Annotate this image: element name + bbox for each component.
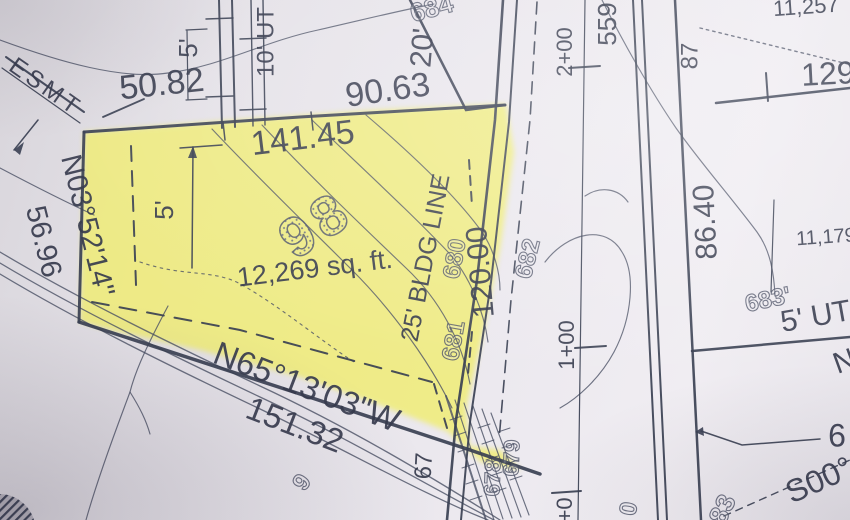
bearing-s00-partial: S00° xyxy=(780,449,850,510)
dim-90-63: 90.63 xyxy=(343,65,433,114)
contour-mark-83: 83 xyxy=(702,490,741,520)
station-2-00: 2+00 xyxy=(552,27,577,77)
dim-86-40: 86.40 xyxy=(687,184,724,261)
contour-679: 679 xyxy=(498,439,524,477)
dim-50-82: 50.82 xyxy=(117,61,206,108)
dim-5ft-lot: 5' xyxy=(149,200,179,219)
bearing-n-partial: N xyxy=(829,342,850,380)
dim-559: 559 xyxy=(592,2,622,45)
contour-682: 682 xyxy=(510,236,546,281)
contour-mark-0: 0 xyxy=(614,500,643,518)
lot-area-11179: 11,179 xyxy=(795,224,850,250)
lot-area-11257: 11,257 xyxy=(772,0,839,21)
easement-20ft: 20' xyxy=(404,27,440,69)
dim-56-96: 56.96 xyxy=(19,203,68,281)
plat-drawing: ESMT50.825'10' UT90.6320'6842+005598711,… xyxy=(0,0,850,520)
dim-87: 87 xyxy=(676,43,703,70)
station-0-00: 0+0 xyxy=(552,497,577,520)
corner-hatch-mark xyxy=(0,494,34,520)
easement-10ft-ut: 10' UT xyxy=(252,7,279,77)
plat-map-photo: ESMT50.825'10' UT90.6320'6842+005598711,… xyxy=(0,0,850,520)
contour-67: 67 xyxy=(410,452,438,480)
dim-129: 129 xyxy=(800,54,850,93)
esmt-label: ESMT xyxy=(4,52,87,122)
contour-684: 684 xyxy=(407,0,457,28)
elev-6-partial: 6 xyxy=(828,417,846,453)
easement-5ft-top: 5' xyxy=(173,38,203,57)
station-1-00: 1+00 xyxy=(554,320,579,370)
contour-9: 9 xyxy=(287,469,317,495)
